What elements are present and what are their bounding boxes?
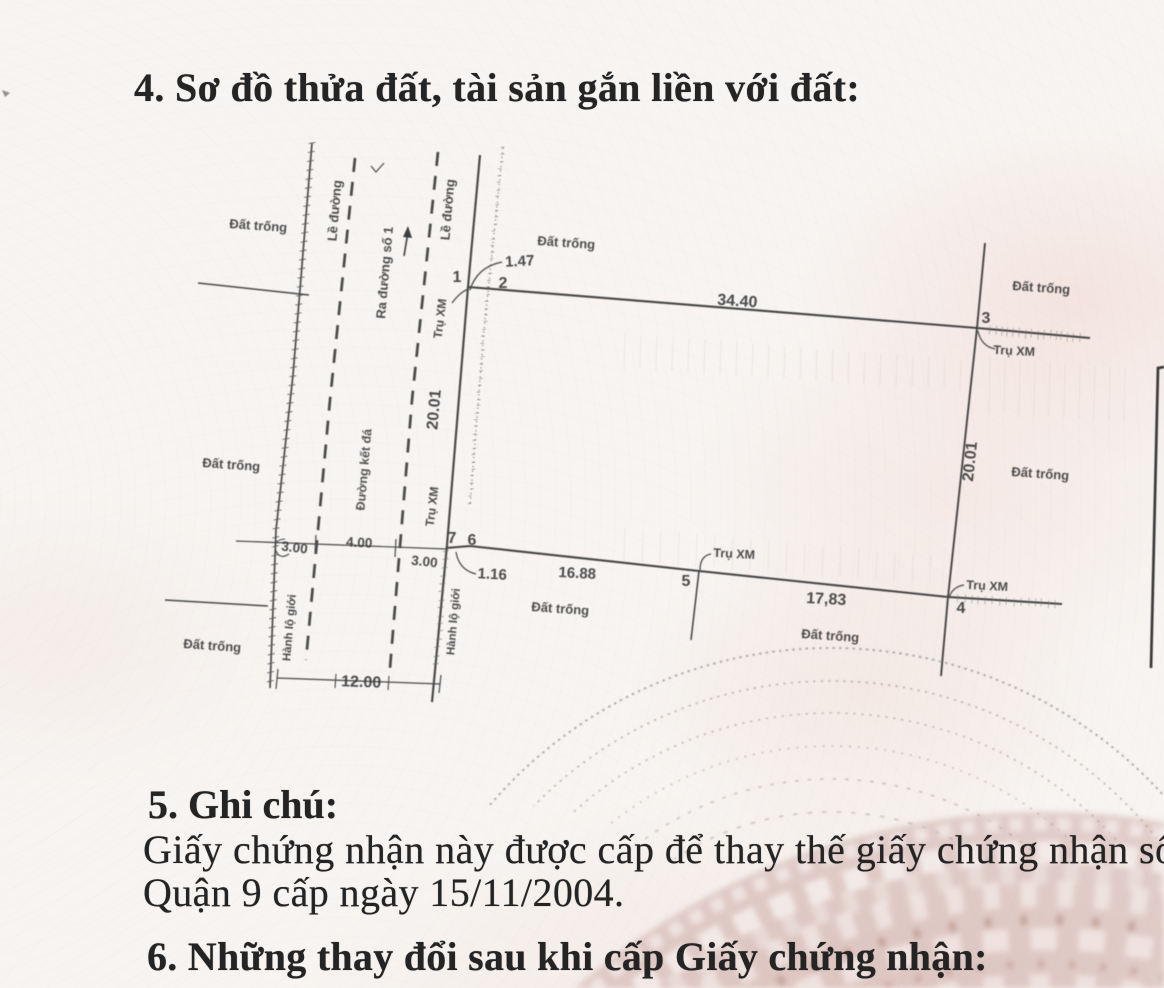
svg-text:Đất trống: Đất trống: [183, 636, 242, 655]
svg-text:6: 6: [468, 532, 477, 549]
svg-text:Trụ XM: Trụ XM: [431, 298, 450, 339]
svg-text:2: 2: [499, 275, 508, 292]
svg-text:Trụ XM: Trụ XM: [713, 546, 755, 562]
svg-text:4.00: 4.00: [346, 534, 373, 550]
svg-text:1.16: 1.16: [477, 565, 507, 584]
svg-text:7: 7: [448, 530, 457, 547]
svg-text:1.47: 1.47: [505, 252, 535, 271]
svg-text:Đất trống: Đất trống: [202, 455, 261, 474]
svg-text:3.00: 3.00: [411, 553, 439, 571]
svg-text:Trụ XM: Trụ XM: [966, 578, 1008, 594]
svg-text:Ra đường số 1: Ra đường số 1: [373, 226, 396, 319]
svg-text:17,83: 17,83: [806, 590, 847, 609]
svg-text:Hành lộ giới: Hành lộ giới: [281, 594, 299, 662]
svg-text:20.01: 20.01: [424, 389, 444, 430]
svg-text:Đất trống: Đất trống: [537, 233, 596, 252]
svg-text:16.88: 16.88: [558, 564, 596, 583]
svg-text:Đường kết đá: Đường kết đá: [353, 428, 374, 511]
svg-text:34.40: 34.40: [717, 292, 758, 312]
svg-text:Đất trống: Đất trống: [1011, 464, 1070, 483]
svg-text:20.01: 20.01: [960, 441, 981, 483]
svg-text:Hành lộ giới: Hành lộ giới: [445, 588, 463, 656]
svg-text:5: 5: [682, 573, 691, 590]
svg-text:Đất trống: Đất trống: [229, 216, 288, 235]
svg-text:Đất trống: Đất trống: [531, 599, 590, 618]
svg-text:Lề đường: Lề đường: [437, 178, 457, 240]
svg-text:12.00: 12.00: [341, 673, 382, 691]
svg-text:3.00: 3.00: [281, 538, 309, 556]
svg-text:Trụ XM: Trụ XM: [423, 486, 442, 527]
svg-text:Đất trống: Đất trống: [1012, 278, 1071, 297]
svg-text:3: 3: [982, 310, 991, 327]
svg-text:Đất trống: Đất trống: [801, 626, 860, 645]
svg-text:1: 1: [453, 269, 462, 286]
svg-text:4: 4: [957, 600, 966, 617]
svg-text:Trụ XM: Trụ XM: [993, 343, 1035, 359]
svg-text:Lề đường: Lề đường: [324, 179, 344, 241]
